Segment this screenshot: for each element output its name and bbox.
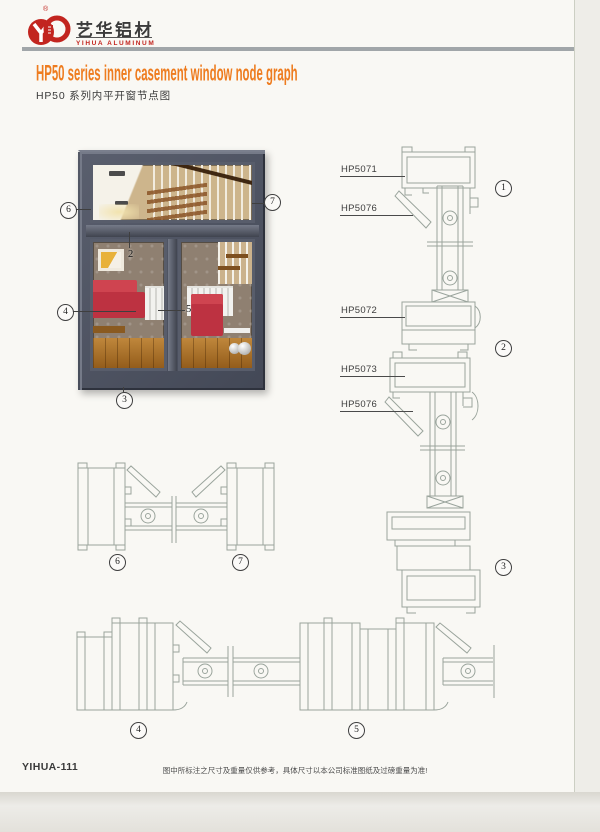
detail-4-5-drawing: [70, 615, 515, 720]
node-1: 1: [495, 180, 512, 197]
brand-name-en: YIHUA ALUMINUM: [76, 40, 155, 47]
scan-right-edge: [574, 0, 600, 832]
callout-5: 5: [186, 304, 191, 315]
node-2: 2: [495, 340, 512, 357]
transom-rail: [86, 225, 259, 237]
coffee-table: [93, 326, 125, 333]
logo-divider-line: [76, 37, 152, 38]
radiator: [145, 286, 164, 320]
leader-line: [72, 311, 136, 312]
red-sofa: [90, 292, 145, 318]
node-6: 6: [109, 554, 126, 571]
transom-pane: [90, 162, 255, 223]
profile-label-hp5072: HP5072: [340, 305, 405, 318]
node-7: 7: [232, 554, 249, 571]
profile-label-hp5076b: HP5076: [340, 399, 413, 412]
node-4: 4: [130, 722, 147, 739]
leader-line: [129, 232, 130, 248]
page-subtitle: HP50 系列内平开窗节点图: [36, 88, 171, 103]
stair-step: [218, 266, 240, 270]
disclaimer-text: 图中所标注之尺寸及重量仅供参考，具体尺寸以本公司标准图纸及过磅重量为准!: [130, 765, 460, 776]
profile-label-hp5071: HP5071: [340, 164, 405, 177]
registered-mark: ®: [43, 6, 48, 13]
callout-3: 3: [116, 392, 133, 409]
window-photo: [78, 150, 265, 390]
node-3: 3: [495, 559, 512, 576]
center-mullion: [168, 239, 177, 371]
callout-7: 7: [264, 194, 281, 211]
leader-line: [158, 310, 185, 311]
callout-4: 4: [57, 304, 74, 321]
callout-2: 2: [128, 249, 133, 260]
wall-picture: [98, 249, 124, 271]
page-code: YIHUA-111: [22, 761, 78, 773]
catalog-page: ® 艺华铝材 YIHUA ALUMINUM HP50 series inner …: [0, 0, 600, 832]
scan-bottom-edge: [0, 792, 600, 832]
lamp-glow: [99, 204, 139, 220]
yihua-logo-icon: [26, 10, 76, 52]
red-armchair: [191, 294, 223, 336]
page-title: HP50 series inner casement window node g…: [36, 62, 298, 87]
side-table: [224, 328, 250, 333]
decor-sphere: [238, 342, 251, 355]
stair-fragment: [218, 242, 252, 284]
leader-line: [75, 209, 91, 210]
stair-step: [226, 254, 248, 258]
callout-6: 6: [60, 202, 77, 219]
wood-floor: [93, 338, 164, 368]
node-5: 5: [348, 722, 365, 739]
detail-6-7-drawing: [70, 455, 285, 555]
profile-label-hp5076: HP5076: [340, 203, 413, 216]
profile-label-hp5073: HP5073: [340, 364, 405, 377]
header-divider-bar: [22, 47, 587, 51]
ceiling-light: [109, 171, 125, 176]
